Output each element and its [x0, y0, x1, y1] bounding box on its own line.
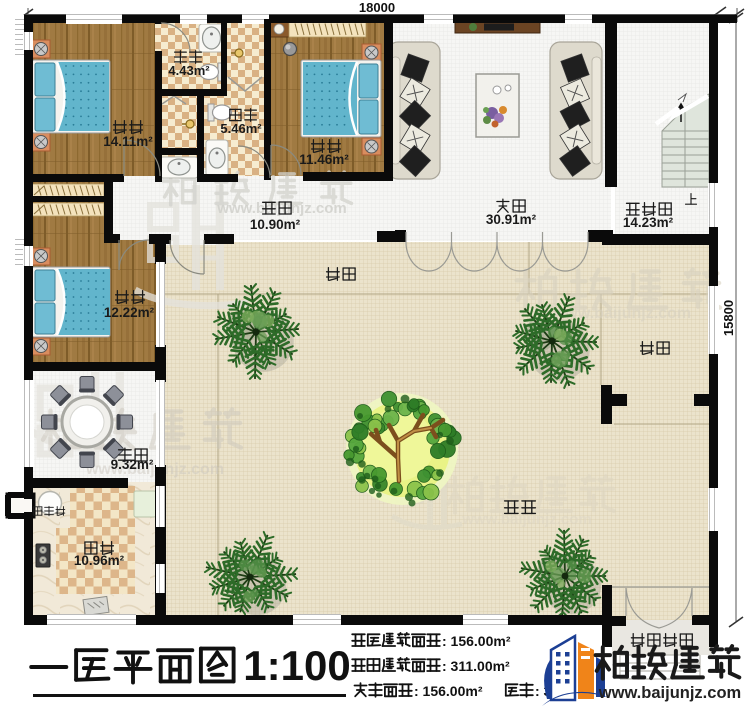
svg-text:: 311.00m²: : 311.00m² [442, 658, 510, 674]
svg-text:18000: 18000 [359, 0, 395, 15]
svg-text:1:100: 1:100 [243, 642, 350, 689]
svg-text:10.90m²: 10.90m² [250, 217, 301, 232]
svg-text:14.11m²: 14.11m² [103, 134, 153, 149]
svg-text:14.23m²: 14.23m² [623, 215, 674, 230]
svg-text:www.baijunjz.com: www.baijunjz.com [552, 305, 691, 322]
svg-text:11.46m²: 11.46m² [299, 152, 349, 167]
svg-text:15800: 15800 [721, 300, 736, 336]
svg-text:30.91m²: 30.91m² [486, 212, 537, 227]
svg-text:: 156.00m²: : 156.00m² [414, 683, 483, 699]
svg-text:4.43m²: 4.43m² [168, 63, 210, 78]
svg-text:9.32m²: 9.32m² [111, 457, 154, 472]
svg-text:12.22m²: 12.22m² [104, 305, 155, 320]
svg-text:5.46m²: 5.46m² [220, 121, 262, 136]
svg-text:10.96m²: 10.96m² [74, 553, 125, 568]
svg-text:www.baijunjz.com: www.baijunjz.com [598, 684, 741, 702]
svg-text:www.baijunjz.com: www.baijunjz.com [85, 461, 224, 478]
svg-text:: 156.00m²: : 156.00m² [442, 633, 511, 649]
